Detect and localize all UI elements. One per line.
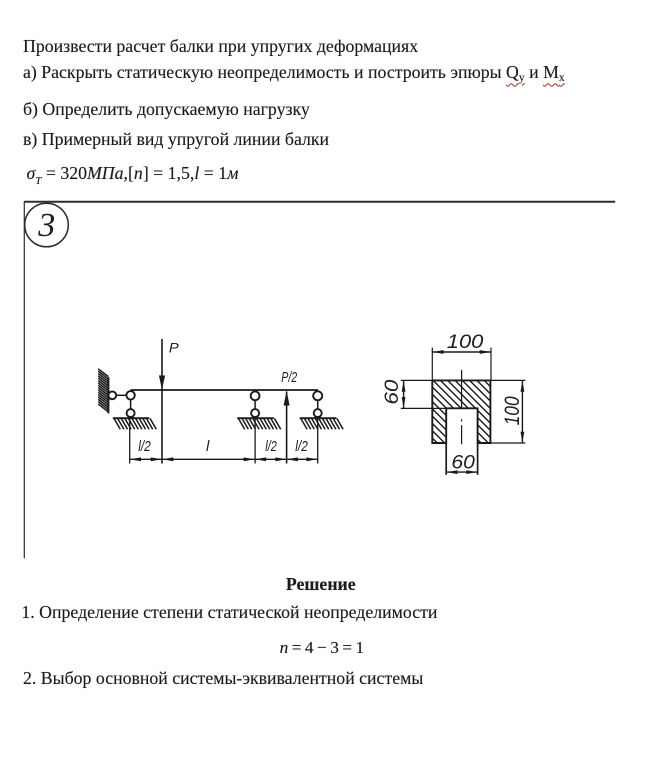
svg-text:l/2: l/2	[295, 438, 308, 455]
svg-text:P: P	[169, 340, 179, 356]
svg-text:l: l	[206, 438, 210, 455]
svg-text:3: 3	[37, 207, 55, 244]
svg-text:100: 100	[447, 331, 484, 353]
svg-text:l/2: l/2	[265, 438, 277, 455]
svg-text:100: 100	[500, 396, 524, 425]
svg-text:P/2: P/2	[281, 370, 297, 386]
svg-text:60: 60	[381, 379, 403, 404]
svg-text:l/2: l/2	[138, 438, 151, 455]
svg-text:60: 60	[451, 451, 475, 473]
